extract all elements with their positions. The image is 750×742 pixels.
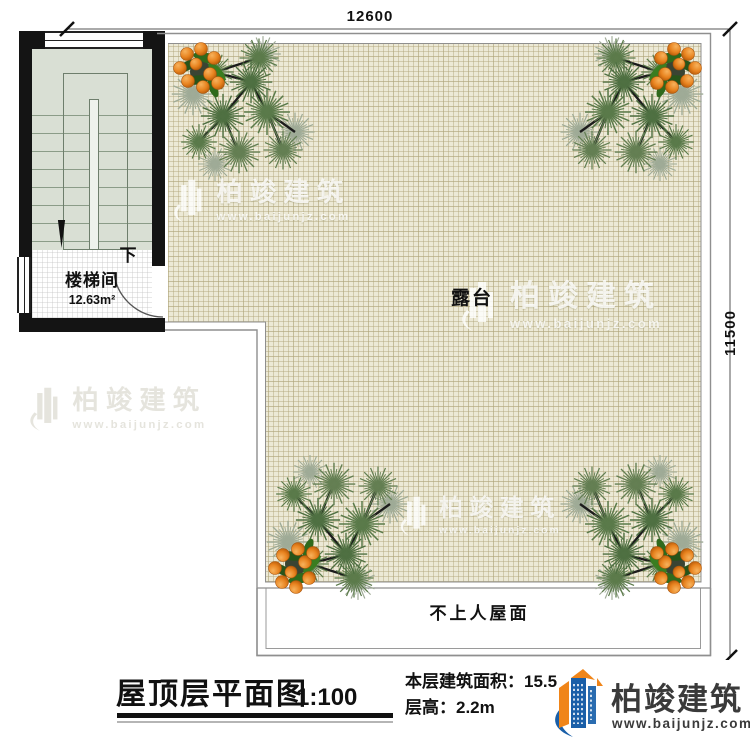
drawing-title: 屋顶层平面图 xyxy=(116,669,308,713)
floor-area-row: 本层建筑面积：15.5 xyxy=(405,669,557,695)
terrace-label: 露台 xyxy=(417,288,527,310)
dimension-right: 11500 xyxy=(722,302,738,364)
stair-wall-bottom xyxy=(19,318,165,332)
stair-room-area: 12.63m² xyxy=(32,293,152,307)
floor-height-label: 层高： xyxy=(405,698,456,717)
watermark-logo-icon xyxy=(24,386,64,432)
company-name: 柏竣建筑 xyxy=(611,674,743,719)
stair-handrail xyxy=(89,99,99,250)
roof-strip-label: 不上人屋面 xyxy=(257,604,702,624)
company-url: www.baijunjz.com xyxy=(612,716,750,731)
window-top xyxy=(45,31,143,49)
watermark-text: 柏竣建筑 xyxy=(72,387,206,413)
title-underline-thin xyxy=(117,721,393,723)
watermark-url: www.baijunjz.com xyxy=(72,417,206,430)
drawing-scale: 1:100 xyxy=(296,684,357,712)
drawing-info: 本层建筑面积：15.5 层高：2.2m xyxy=(405,669,557,721)
stair-down-label: 下 xyxy=(116,246,140,266)
title-underline-thick xyxy=(117,713,393,718)
watermark: 柏竣建筑 www.baijunjz.com xyxy=(24,386,206,432)
terrace-floor xyxy=(168,44,701,582)
roof-plan-page: { "plan": { "dim_top": "12600", "dim_rig… xyxy=(0,0,750,742)
dimension-top: 12600 xyxy=(335,8,405,25)
floor-area-label: 本层建筑面积： xyxy=(405,672,524,691)
floor-height-row: 层高：2.2m xyxy=(405,695,557,721)
floor-height-value: 2.2m xyxy=(456,698,495,717)
stair-room-label: 楼梯间 xyxy=(32,271,152,291)
company-logo-icon xyxy=(545,666,607,740)
window-left xyxy=(17,257,31,313)
stair-wall-right xyxy=(152,31,165,266)
